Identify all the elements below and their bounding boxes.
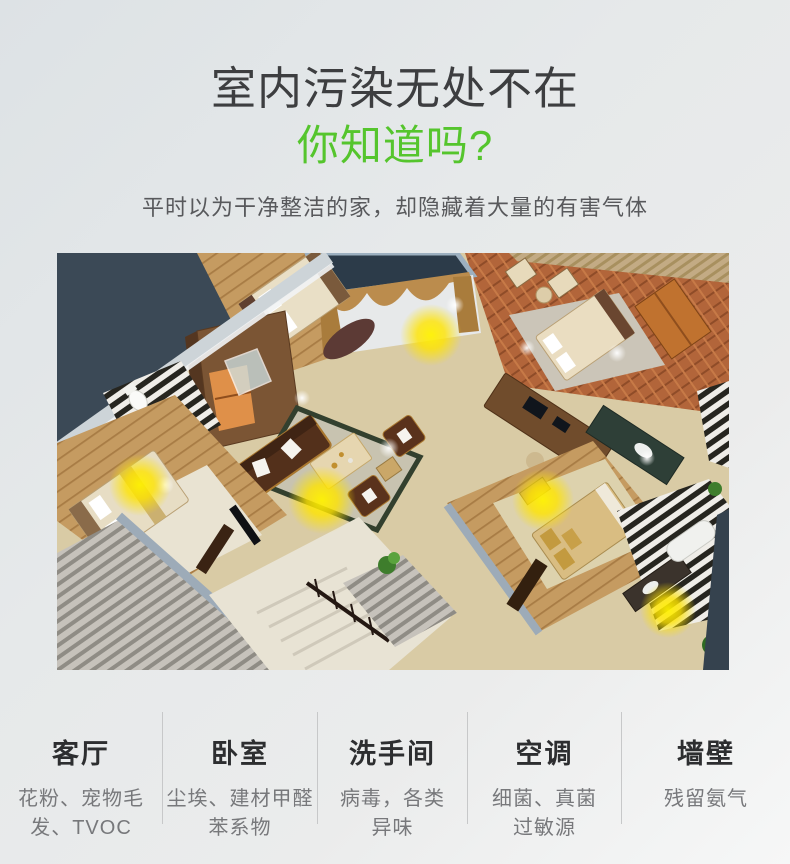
source-title: 墙壁 bbox=[622, 732, 790, 771]
source-line: 花粉、宠物毛 bbox=[0, 785, 162, 814]
source-column-living-room: 客厅 花粉、宠物毛 发、TVOC bbox=[0, 712, 163, 824]
source-line: 过敏源 bbox=[468, 814, 621, 843]
source-line: 病毒，各类 bbox=[318, 785, 467, 814]
pollution-glow bbox=[400, 304, 462, 366]
source-column-bathroom: 洗手间 病毒，各类 异味 bbox=[318, 712, 468, 824]
source-line: 异味 bbox=[318, 814, 467, 843]
source-line: 细菌、真菌 bbox=[468, 785, 621, 814]
source-line: 尘埃、建材甲醛 bbox=[163, 785, 317, 814]
source-column-wall: 墙壁 残留氨气 bbox=[622, 712, 790, 824]
pollution-glow bbox=[512, 469, 574, 531]
apartment-render-svg bbox=[57, 253, 729, 670]
pollution-glow bbox=[640, 582, 696, 638]
apartment-render-image bbox=[57, 253, 729, 670]
source-title: 客厅 bbox=[0, 732, 162, 771]
source-title: 洗手间 bbox=[318, 732, 467, 771]
page-subtitle-green: 你知道吗? bbox=[0, 112, 790, 173]
page-description: 平时以为干净整洁的家，却隐藏着大量的有害气体 bbox=[0, 190, 790, 222]
source-title: 空调 bbox=[468, 732, 621, 771]
pollution-sources-row: 客厅 花粉、宠物毛 发、TVOC 卧室 尘埃、建材甲醛 苯系物 洗手间 病毒，各… bbox=[0, 712, 790, 824]
source-line: 发、TVOC bbox=[0, 814, 162, 843]
source-column-air-conditioner: 空调 细菌、真菌 过敏源 bbox=[468, 712, 622, 824]
source-column-bedroom: 卧室 尘埃、建材甲醛 苯系物 bbox=[163, 712, 318, 824]
source-line: 苯系物 bbox=[163, 814, 317, 843]
pollution-glow bbox=[288, 466, 356, 534]
source-line: 残留氨气 bbox=[622, 785, 790, 814]
source-title: 卧室 bbox=[163, 732, 317, 771]
page-title: 室内污染无处不在 bbox=[0, 52, 790, 117]
pollution-glow bbox=[109, 454, 171, 516]
